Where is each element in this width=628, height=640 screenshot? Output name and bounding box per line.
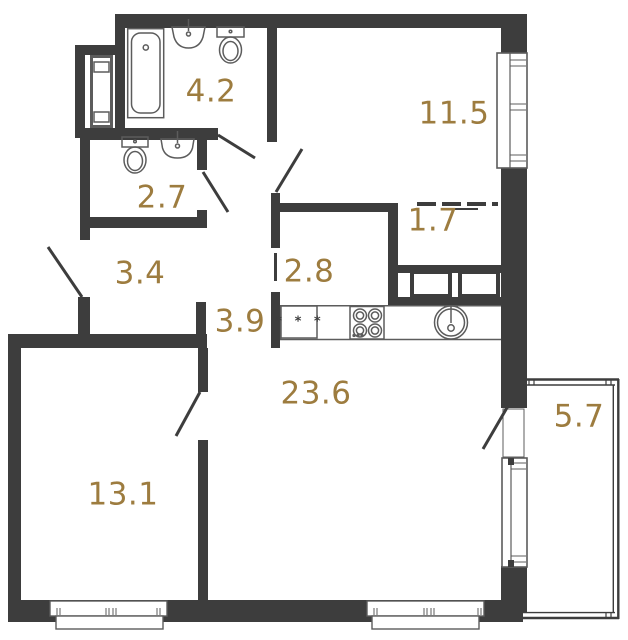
window-balcony xyxy=(502,458,527,567)
area-label-hallway: 3.4 xyxy=(115,259,166,290)
area-label-bathroom: 4.2 xyxy=(186,77,237,108)
window-bedroom xyxy=(50,601,167,629)
toilet-icon-bathroom xyxy=(217,27,244,63)
appliance-marks: * * * xyxy=(275,315,324,330)
area-label-kitchen-living: 23.6 xyxy=(280,379,351,410)
toilet-icon-wc xyxy=(122,137,148,173)
door-leaf-wc xyxy=(203,172,228,212)
area-label-balcony: 5.7 xyxy=(554,402,605,433)
area-label-bedroom: 13.1 xyxy=(87,480,158,511)
shaft-cabinet-icon xyxy=(92,57,112,127)
door-leaf-room xyxy=(276,149,302,192)
kitchen-sink-icon xyxy=(435,306,468,339)
bathtub-icon xyxy=(128,29,164,118)
area-label-room: 11.5 xyxy=(418,99,489,130)
stove-icon xyxy=(350,307,384,340)
area-label-wardrobe: 1.7 xyxy=(408,206,459,237)
window-kitchen xyxy=(367,601,484,629)
area-label-hall: 2.8 xyxy=(284,257,335,288)
wardrobe-cabinet-icon xyxy=(412,272,498,296)
window-room-right xyxy=(497,53,527,168)
area-label-wc: 2.7 xyxy=(137,183,188,214)
door-leaf-bathroom xyxy=(218,135,255,158)
door-leaf-entry xyxy=(48,247,82,297)
door-leaf-bedroom xyxy=(176,392,200,436)
balcony-door-frame xyxy=(503,409,524,457)
floor-plan: 4.2 11.5 2.7 1.7 3.4 2.8 3.9 23.6 13.1 5… xyxy=(0,0,628,640)
area-label-corridor: 3.9 xyxy=(215,307,266,338)
